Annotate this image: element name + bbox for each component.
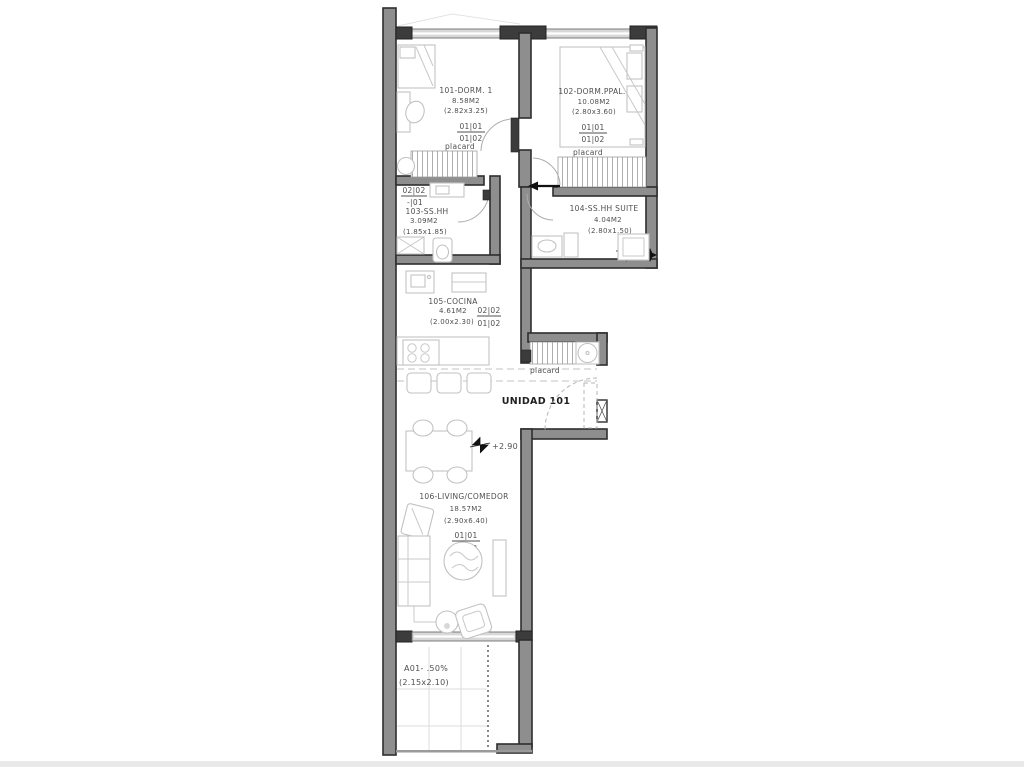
room-101-name: 101-DORM. 1 [439,86,492,95]
shower-icon [618,234,649,260]
sofa-icon [398,536,436,622]
toilet-icon [564,233,578,257]
door-102-arrow-icon [528,158,560,191]
room-106-code-top: 01|01 [454,531,477,540]
door-101-leaf [511,118,519,152]
room-106-name: 106-LIVING/COMEDOR [419,492,508,501]
room-106-dims: (2.90x6.40) [444,517,488,525]
ottoman-icon [436,611,458,633]
room-103-area: 3.09M2 [410,217,438,225]
room-102-code-bottom: 01|02 [581,135,604,144]
door-mark [521,350,531,362]
kitchen-105: 105-COCINA 4.61M2 (2.00x2.30) 02|02 01|0… [397,271,597,393]
dining-table-icon [406,420,472,483]
bathroom-104: 104-SS.HH SUITE 4.04M2 (2.80x1.50) 02|02… [527,194,657,262]
room-102-dims: (2.80x3.60) [572,108,616,116]
room-102-area: 10.08M2 [578,98,611,106]
door-101-swing [481,119,511,151]
bedroom-102: 102-DORM.PPAL. 10.08M2 (2.80x3.60) 01|01… [528,45,646,191]
room-104-name: 104-SS.HH SUITE [570,204,639,213]
washbasin-icon [397,237,424,254]
balcony-dims: (2.15x2.10) [399,678,449,687]
floor-plan-image: 101-DORM. 1 8.58M2 (2.82x3.25) 01|01 01|… [0,0,1024,768]
bottom-border-strip [0,761,1024,767]
entry-door-leaf [584,383,597,428]
room-101-area: 8.58M2 [452,97,480,105]
faint-outline [398,14,520,26]
level-value: +2.90 [492,442,518,451]
bedroom-101: 101-DORM. 1 8.58M2 (2.82x3.25) 01|01 01|… [397,45,519,177]
door-103-leaf [483,190,490,200]
balcony-a01: A01- .50% (2.15x2.10) [397,645,488,750]
round-basin-icon [398,158,415,175]
single-bed-icon [398,45,435,88]
room-103-code-top: 02|02 [402,186,425,195]
room-105-name: 105-COCINA [428,297,478,306]
room-105-area: 4.61M2 [439,307,467,315]
entry-hall: placard UNIDAD 101 [502,342,599,430]
kitchen-sink-icon [406,271,434,293]
washing-machine-icon [576,342,599,364]
toilet-icon [433,238,452,262]
desk-chair-icon [397,92,427,132]
room-103-code-bottom: -|01 [407,198,423,207]
room-104-area: 4.04M2 [594,216,622,224]
room-102-code-top: 01|01 [581,123,604,132]
fridge-icon [452,273,486,292]
room-101-code-top: 01|01 [459,122,482,131]
floor-plan-svg: 101-DORM. 1 8.58M2 (2.82x3.25) 01|01 01|… [0,0,1024,768]
plant-rug-icon [444,542,482,580]
level-marker-icon [470,437,490,453]
room-102-placard-label: placard [573,148,603,157]
room-105-dims: (2.00x2.30) [430,318,474,326]
room-106-area: 18.57M2 [450,505,483,513]
tv-console-icon [493,540,506,596]
room-101-placard-label: placard [445,142,475,151]
bar-stools-icon [407,373,491,393]
balcony-name: A01- .50% [404,664,448,673]
room-105-code-bottom: 01|02 [477,319,500,328]
vanity-sink-icon [430,183,464,197]
room-102-name: 102-DORM.PPAL. [558,87,625,96]
placard-102-hatch [558,157,646,187]
bathroom-103: 02|02 -|01 103-SS.HH 3.09M2 (1.85x1.85) [397,183,490,262]
room-103-name: 103-SS.HH [406,207,449,216]
column-x-icon [597,400,607,422]
armchair-icon [401,503,435,540]
room-105-code-top: 02|02 [477,306,500,315]
unit-title: UNIDAD 101 [502,396,570,407]
entry-placard-label: placard [530,366,560,375]
placard-entry-hatch [530,342,576,364]
vanity-sink-icon [532,236,562,257]
living-106: +2.90 106-LIVING/COMEDOR 18.57M2 (2.90x6… [398,420,518,640]
room-101-dims: (2.82x3.25) [444,107,488,115]
placard-101-hatch [411,151,477,177]
stove-icon [403,340,439,365]
room-103-dims: (1.85x1.85) [403,228,447,236]
